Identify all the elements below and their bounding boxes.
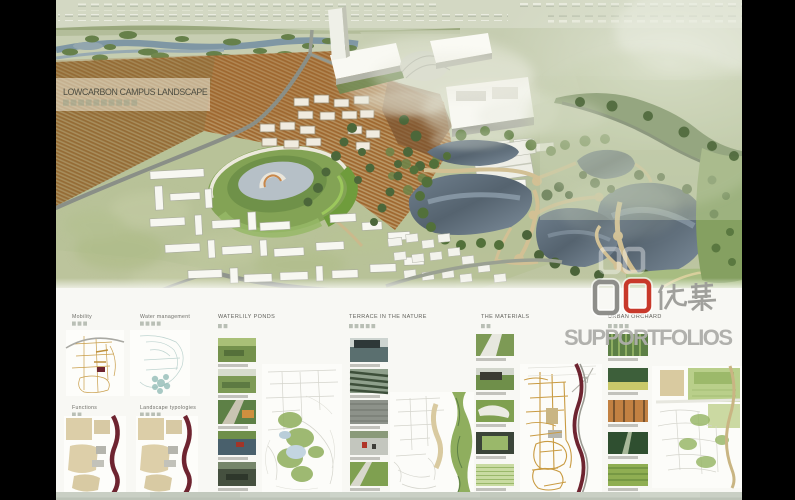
svg-text:Landscape typologies: Landscape typologies xyxy=(140,405,196,411)
svg-text:Water management: Water management xyxy=(140,314,190,320)
svg-text:Mobility: Mobility xyxy=(72,314,92,320)
svg-text:Functions: Functions xyxy=(72,405,97,411)
svg-text:TERRACE IN THE NATURE: TERRACE IN THE NATURE xyxy=(349,314,427,320)
svg-text:THE MATERIALS: THE MATERIALS xyxy=(481,314,530,320)
svg-text:SUPPORTFOLIOS: SUPPORTFOLIOS xyxy=(564,325,734,350)
svg-text:WATERLILY PONDS: WATERLILY PONDS xyxy=(218,314,275,320)
svg-text:LOWCARBON CAMPUS LANDSCAPE: LOWCARBON CAMPUS LANDSCAPE xyxy=(63,87,208,97)
